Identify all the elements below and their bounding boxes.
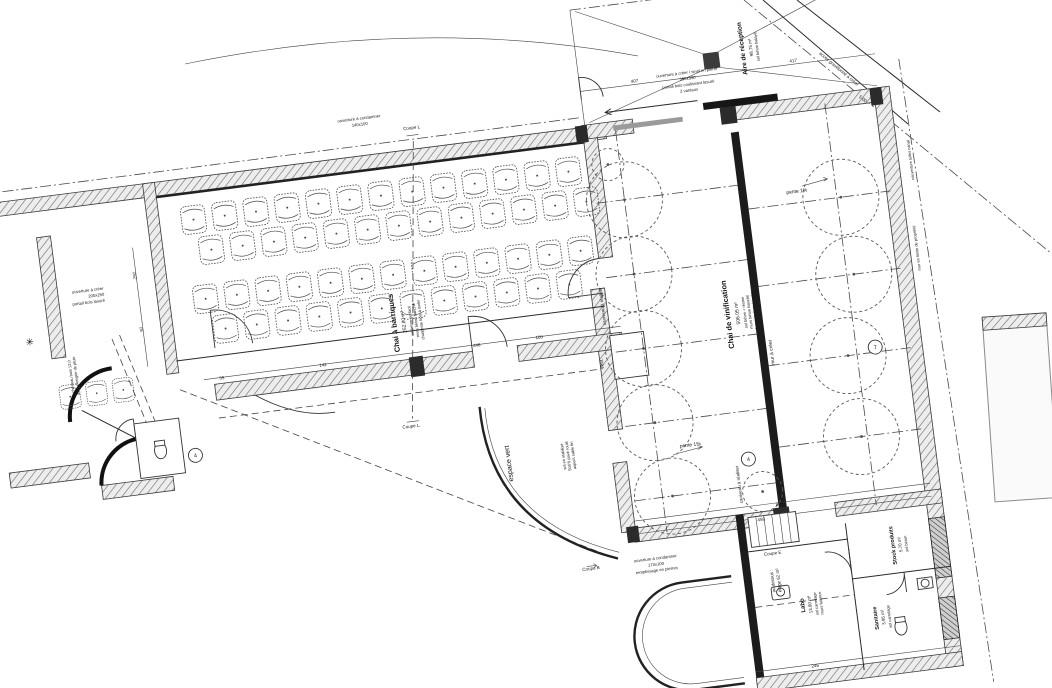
- barrel-icon: [291, 222, 318, 253]
- barrel-icon: [337, 297, 364, 328]
- dim-292: 292: [132, 271, 138, 280]
- barrel-icon: [306, 301, 333, 332]
- barrel-icon: [523, 160, 550, 191]
- dim-35: 35: [219, 375, 225, 381]
- vat-center-dot: [761, 490, 764, 493]
- corridor-pier: [409, 356, 425, 378]
- dim-line-west: [133, 248, 148, 367]
- barrel-icon: [305, 188, 332, 219]
- barrel-icon: [461, 168, 488, 199]
- planter-u-inner: [637, 582, 744, 688]
- vinif-east-wall-new-2: [939, 596, 960, 640]
- vat-axis: [597, 185, 738, 203]
- espace-vert-curve-inner: [485, 394, 620, 567]
- barrel-icon: [493, 277, 520, 308]
- barrel-icon: [323, 218, 350, 249]
- plant-symbol: ✳: [25, 337, 35, 349]
- wall-east-barrel-upper: [582, 126, 613, 259]
- barrel-icon: [399, 176, 426, 207]
- barrel-icon: [504, 243, 531, 274]
- barrel-icon: [416, 206, 443, 237]
- barrel-icon: [462, 281, 489, 312]
- site-road-curve: [185, 38, 638, 64]
- dim-246: 246: [811, 663, 820, 669]
- dim-142: 142: [319, 362, 328, 368]
- wall-east-barrel-south: [613, 462, 636, 533]
- barrel-icon: [431, 285, 458, 316]
- coupe-l-haut: Coupe L: [403, 124, 421, 131]
- courtyard: [255, 338, 745, 688]
- coupe-e: Coupe E: [764, 550, 782, 557]
- barrel-icon: [198, 234, 225, 265]
- barrel-icon: [367, 180, 394, 211]
- barrel-icon: [492, 164, 519, 195]
- barrel-icon: [286, 271, 313, 302]
- ouverture-gauche-3: portail bois lasuré: [72, 298, 106, 307]
- floor-plan-drawing: Chai à barriques252.80 m²sol béton surfa…: [0, 0, 1052, 688]
- neighbour-building: [982, 313, 1052, 502]
- couverture-note: couverture tuiles canal: [905, 140, 915, 180]
- vat-axis: [759, 268, 901, 286]
- vat-axis: [625, 408, 766, 426]
- dim-348: 348: [473, 342, 482, 348]
- barrel-icon: [385, 210, 412, 241]
- chai-barriques-name: Chai à barriques: [386, 293, 402, 352]
- vinif-south-wall-east: [835, 489, 943, 516]
- southwest-wall-1: [9, 463, 90, 488]
- barrel-icon: [479, 198, 506, 229]
- barrel-icon: [274, 192, 301, 223]
- vat-axis: [635, 483, 776, 501]
- barrel-icon: [536, 239, 563, 270]
- barrel-icon: [448, 202, 475, 233]
- barrel-icon: [229, 230, 256, 261]
- vat-axis: [769, 348, 911, 366]
- espace-vert-curve-outer: [479, 392, 618, 574]
- dim-807: 807: [775, 501, 784, 507]
- barrel-icon: [85, 380, 108, 406]
- barrel-icon: [430, 172, 457, 203]
- vat-axis: [825, 104, 876, 506]
- lab-south-wall: [756, 652, 963, 688]
- barrel-icon: [336, 184, 363, 215]
- west-boundary-wall: [37, 236, 66, 359]
- barrel-icon: [442, 251, 469, 282]
- coupe-b: Coupe B: [582, 565, 600, 572]
- barrel-icon: [317, 267, 344, 298]
- coupe-l-bas: Coupe L.: [402, 423, 421, 430]
- barrel-icon: [242, 196, 269, 227]
- courtyard-diagonal: [180, 337, 620, 613]
- barrel-icon: [524, 273, 551, 304]
- barrel-icon: [541, 190, 568, 221]
- barrel-icon: [354, 214, 381, 245]
- caniveau-note-2: caniveau à réaliser: [734, 465, 744, 504]
- boundary-line-north: [0, 118, 581, 194]
- barrel-icon: [348, 263, 375, 294]
- lab-sanitaire-partition: [845, 523, 864, 670]
- dim-417: 417: [789, 58, 798, 64]
- limite-propriete-note: mur en limite de propriété: [911, 224, 922, 270]
- dim-407: 407: [630, 78, 639, 84]
- vat-axis: [749, 191, 891, 209]
- barrel-icon: [567, 235, 594, 266]
- canopy-edge: [570, 0, 865, 10]
- floor-plan-page: Chai à barriques252.80 m²sol béton surfa…: [0, 0, 1052, 688]
- vat-axis: [606, 260, 747, 278]
- barrel-cellar-room: [0, 111, 656, 608]
- barrel-icon: [473, 247, 500, 278]
- barrel-icon: [379, 259, 406, 290]
- toilet: [894, 616, 908, 635]
- corridor-south-wall-west: [215, 351, 475, 400]
- barrel-icon: [243, 309, 270, 340]
- dim-100: 100: [535, 334, 544, 340]
- vestiaire-room: [610, 331, 649, 379]
- vinif-north-wall-west: [582, 119, 634, 139]
- barrel-icon: [260, 226, 287, 257]
- washbasin: [917, 577, 933, 590]
- pente-note-2: pente 1%: [679, 441, 701, 450]
- condamner-top-2: 140x100: [351, 121, 368, 128]
- southwest-wall-2: [102, 476, 175, 499]
- chai-vinification-name: Chai de vinification: [718, 280, 736, 350]
- building-plan-layer: Chai à barriques252.80 m²sol béton surfa…: [0, 0, 994, 688]
- staircase: [748, 512, 799, 548]
- planter-u-outer: [628, 576, 745, 688]
- wall-north-barrel: [0, 125, 607, 218]
- barrel-icon: [180, 204, 207, 235]
- dim-458: 458: [757, 516, 766, 522]
- canopy-side: [570, 10, 585, 125]
- barrel-icon: [274, 305, 301, 336]
- mur-a-creer-note: mur à créer: [767, 339, 776, 365]
- barrel-icon: [556, 269, 583, 300]
- pente-note-1: pente 1%: [786, 187, 808, 196]
- gate-slide-arrow: [605, 98, 698, 116]
- barrel-icon: [510, 194, 537, 225]
- vat-center-dot: [606, 163, 609, 166]
- barrel-icon: [223, 279, 250, 310]
- dim-97: 97: [139, 326, 145, 332]
- wall-west-barrel: [143, 182, 179, 374]
- stock-note: sol béton: [902, 535, 909, 552]
- barrel-icon: [211, 200, 238, 231]
- barrel-icon: [112, 377, 135, 403]
- barrel-icon: [212, 313, 239, 344]
- portail-coulissant-4: 2 vantaux: [680, 86, 700, 93]
- barrel-icon: [411, 255, 438, 286]
- barrel-icon: [254, 275, 281, 306]
- barrel-icon: [555, 156, 582, 187]
